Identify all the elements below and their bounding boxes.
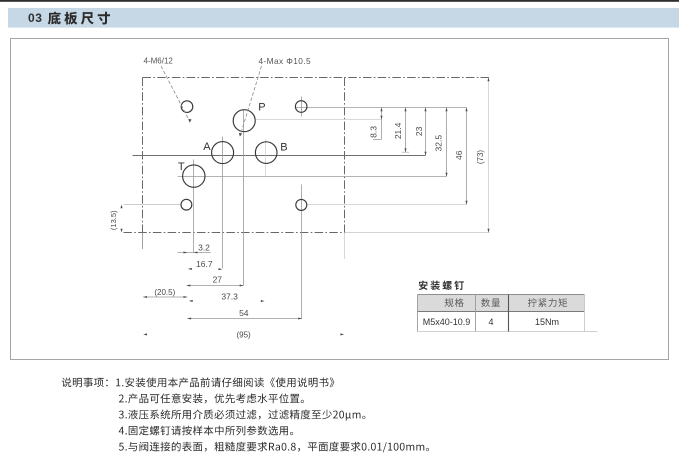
svg-text:23: 23 (414, 126, 424, 136)
svg-text:15Nm: 15Nm (535, 317, 559, 327)
svg-text:37.3: 37.3 (221, 291, 238, 301)
svg-text:A: A (203, 141, 211, 153)
svg-text:3.2: 3.2 (198, 242, 210, 252)
svg-text:54: 54 (239, 308, 249, 318)
svg-text:27: 27 (213, 275, 223, 285)
svg-text:P: P (258, 102, 265, 114)
svg-text:M5x40-10.9: M5x40-10.9 (423, 317, 471, 327)
svg-text:4-M6/12: 4-M6/12 (144, 57, 174, 66)
svg-text:(73): (73) (476, 150, 485, 165)
svg-text:03: 03 (28, 11, 43, 25)
svg-text:16.7: 16.7 (196, 259, 213, 269)
svg-text:(20.5): (20.5) (154, 288, 175, 297)
svg-text:(13.5): (13.5) (109, 210, 118, 230)
svg-text:(95): (95) (236, 330, 251, 339)
svg-text:4-Max Φ10.5: 4-Max Φ10.5 (259, 56, 312, 66)
svg-text:46: 46 (454, 150, 464, 160)
svg-text:32.5: 32.5 (434, 135, 444, 152)
svg-text:B: B (280, 141, 287, 153)
svg-text:4: 4 (488, 317, 493, 327)
svg-text:8.3: 8.3 (368, 126, 378, 138)
svg-text:T: T (178, 161, 185, 173)
svg-text:21.4: 21.4 (393, 122, 403, 139)
